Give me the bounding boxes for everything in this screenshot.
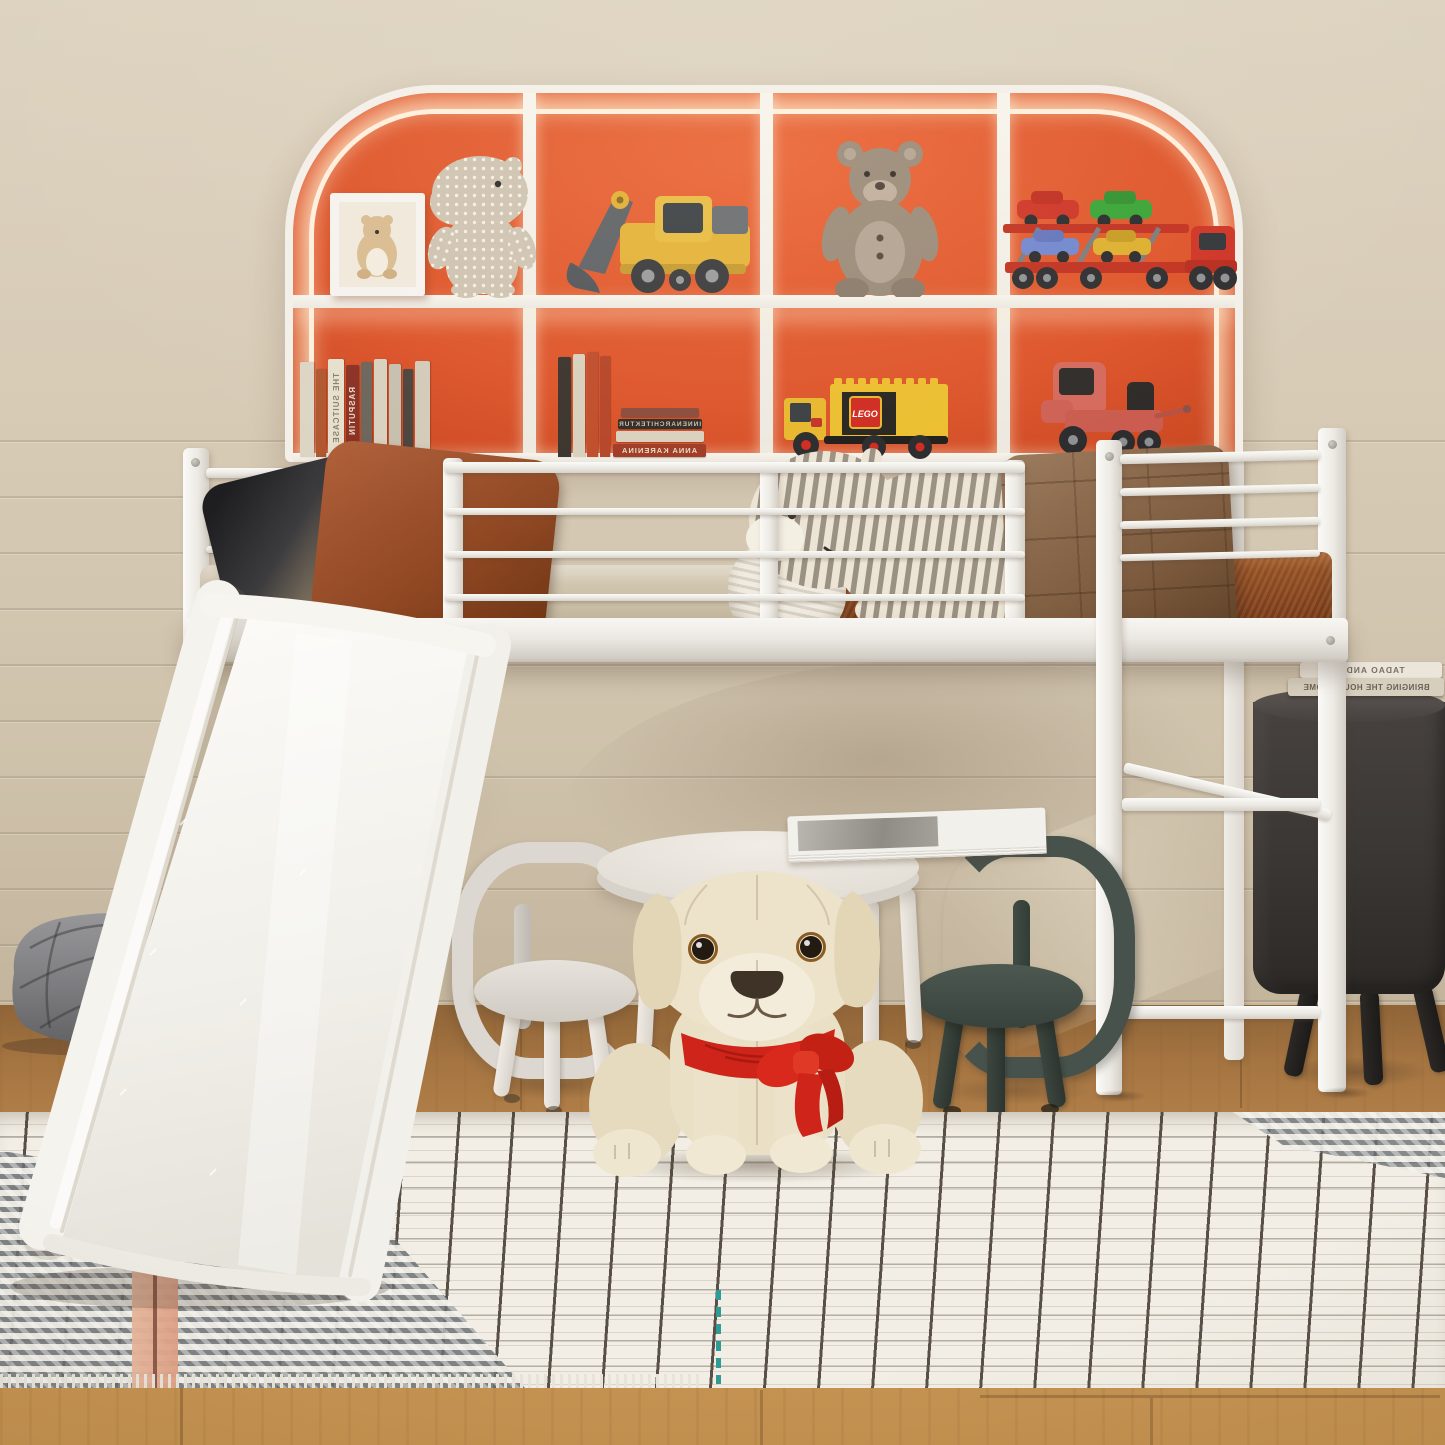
book-spine <box>573 354 585 457</box>
bolt <box>1326 636 1335 645</box>
rug-teal-accent <box>716 1290 721 1384</box>
plush-dog <box>585 865 925 1185</box>
book-title-mirrored: RASPUTIN <box>348 387 357 436</box>
teddy-bear <box>815 132 945 297</box>
picture-frame <box>330 193 425 296</box>
book-title-mirrored: INNENARCHITEKTUR <box>618 421 701 428</box>
table-magazine <box>787 808 1046 863</box>
dog-front-paw <box>770 1133 832 1173</box>
plush-hippo <box>418 148 548 298</box>
book-spine <box>316 369 326 457</box>
book-stack: INNENARCHITEKTUR ANNA KARENINA <box>612 404 707 457</box>
guardrail-bar <box>445 508 1025 515</box>
ladder-rung <box>1122 798 1320 811</box>
lego-stud-row <box>834 378 938 385</box>
toy-car-carrier <box>995 186 1240 298</box>
books-row <box>558 350 616 457</box>
dog-eye <box>800 936 822 958</box>
bear-print <box>339 202 416 287</box>
side-table-book: BRINGING THE HOUSE HOME <box>1288 678 1444 696</box>
plank-seam <box>760 1390 763 1445</box>
bolt <box>1328 440 1337 449</box>
guardrail-post <box>1005 460 1025 638</box>
slide <box>0 575 560 1320</box>
toddler-chair-green <box>895 836 1095 1096</box>
stacked-book <box>616 431 704 442</box>
book-spine <box>600 356 610 457</box>
side-table-body <box>1253 702 1445 994</box>
book-spine <box>389 364 401 457</box>
dog-ear <box>834 891 880 1007</box>
kids-room-product-photo: THE SUITCASE RASPUTIN INNENARCHITEKTUR A… <box>0 0 1445 1445</box>
book-spine <box>415 361 430 457</box>
plank-seam <box>980 1395 1440 1398</box>
chair-seat <box>915 964 1083 1028</box>
book-spine <box>403 369 413 457</box>
book-title-mirrored: TADAO ANDO <box>1338 665 1405 675</box>
bolt <box>191 458 200 467</box>
toy-excavator <box>560 168 765 296</box>
magazine-cover-photo <box>797 816 938 851</box>
car-green <box>1090 191 1152 228</box>
guardrail-bar <box>445 462 1025 473</box>
dog-front-paw <box>686 1135 746 1175</box>
bear-illustration <box>339 202 416 287</box>
bolt <box>1105 452 1114 461</box>
plank-seam <box>1150 1398 1153 1445</box>
book-spine <box>300 362 314 457</box>
guardrail-bar <box>445 551 1025 558</box>
dog-hind-paw <box>849 1124 921 1174</box>
rug-fringe <box>0 1374 700 1388</box>
stacked-book: ANNA KARENINA <box>613 444 706 457</box>
dog-hind-paw <box>593 1129 661 1177</box>
book-title-mirrored: THE SUITCASE <box>332 373 341 444</box>
book-spine <box>558 357 571 457</box>
dog-eye <box>692 938 714 960</box>
book-spine <box>587 352 598 457</box>
lego-logo: LEGO <box>852 409 878 419</box>
plank-seam <box>180 1385 183 1445</box>
guardrail-post <box>760 462 778 638</box>
stacked-book: INNENARCHITEKTUR <box>618 419 702 429</box>
book-title-mirrored: ANNA KARENINA <box>621 446 697 455</box>
stacked-book <box>621 408 699 417</box>
ladder-rung <box>1122 1006 1320 1019</box>
carrier-cab <box>1185 226 1237 273</box>
car-red <box>1017 191 1079 228</box>
car-blue <box>1021 230 1079 263</box>
dog-ear <box>633 893 682 1010</box>
footboard-post <box>1318 428 1346 1092</box>
chair-leg <box>987 1014 1005 1122</box>
